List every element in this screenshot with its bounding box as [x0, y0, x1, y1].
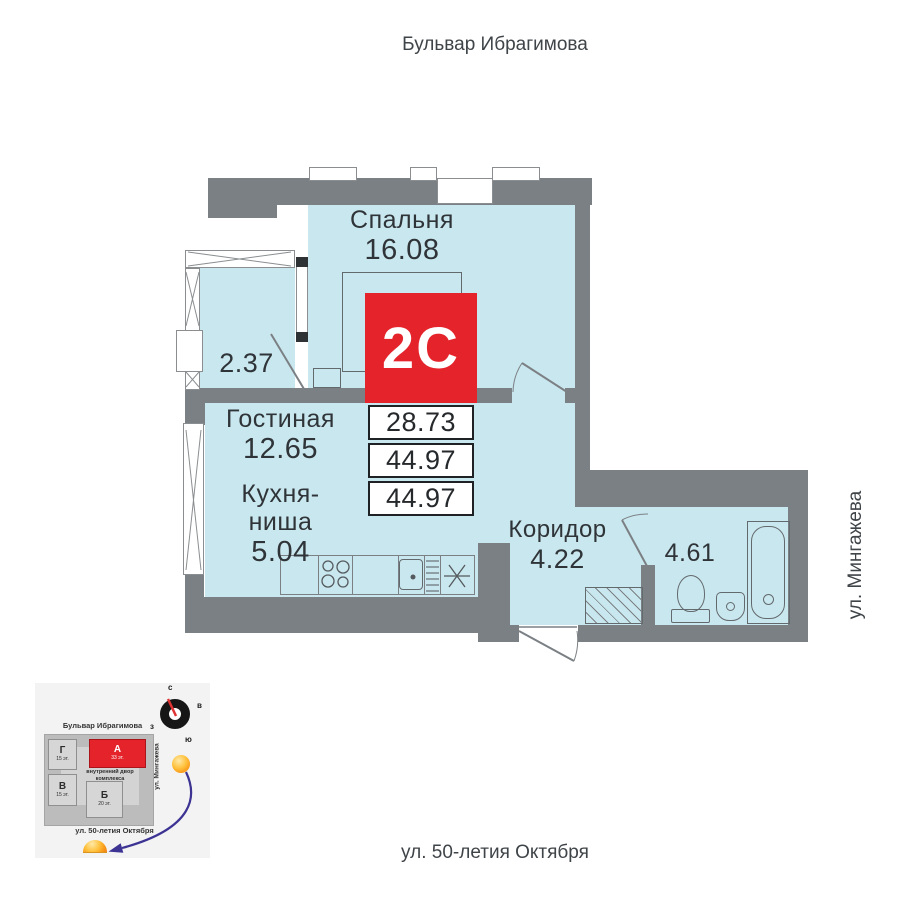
bathtub-inner [751, 526, 785, 619]
building-b-label: Б [101, 791, 108, 801]
kitchen-name: Кухня- ниша [198, 480, 363, 536]
nightstand [313, 368, 341, 388]
corridor-area: 4.22 [485, 544, 630, 574]
building-b-floors: 20 эт. [98, 801, 111, 808]
apartment-type-badge: 2С [365, 293, 477, 403]
living-area: 12.65 [198, 433, 363, 465]
partition-balcony [296, 257, 308, 342]
minimap-street-right: ул. Мингажева [154, 737, 161, 797]
window-top-1 [309, 167, 357, 181]
minimap-courtyard-label: внутренний двор комплекса [75, 769, 145, 783]
compass-icon [160, 699, 190, 729]
compass-south: ю [185, 736, 192, 744]
location-minimap: Бульвар Ибрагимова Г 15 эт. В 15 эт. А 3… [35, 683, 210, 858]
window-balcony-glazing [185, 250, 295, 268]
partition-cap-bottom [296, 332, 308, 342]
window-top-2 [410, 167, 437, 181]
toilet-tank [671, 609, 710, 623]
building-v-floors: 15 эт. [56, 792, 69, 799]
counter-divider [440, 556, 441, 594]
toilet-bowl [677, 575, 705, 612]
corridor-name: Коридор [485, 517, 630, 544]
minimap-building-a-highlighted: А 33 эт. [89, 739, 146, 768]
wall-bedroom-door-stub [565, 388, 590, 403]
compass-east: в [197, 702, 202, 710]
kitchen-sink [399, 559, 423, 590]
wall-wing-bottom [578, 625, 808, 642]
label-bathroom: 4.61 [650, 539, 730, 567]
minimap-building-b: Б 20 эт. [86, 781, 123, 818]
wardrobe-hatch [585, 587, 643, 624]
bedroom-name: Спальня [302, 206, 502, 234]
minimap-building-v: В 15 эт. [48, 774, 77, 806]
wall-bathroom-corridor [641, 565, 655, 625]
counter-divider [424, 556, 425, 594]
building-v-label: В [59, 782, 66, 792]
label-balcony: 2.37 [204, 348, 289, 378]
bathroom-area: 4.61 [650, 539, 730, 567]
building-g-label: Г [60, 746, 66, 756]
window-top-niche [437, 178, 493, 204]
sun-west-icon [83, 840, 107, 853]
compass-north: с [168, 684, 172, 692]
stat-living-area: 28.73 [368, 405, 474, 440]
window-balcony-radiator [176, 330, 203, 372]
bedroom-area: 16.08 [302, 234, 502, 266]
wall-right [575, 178, 590, 474]
stat-total-area: 44.97 [368, 481, 474, 516]
entrance-threshold [519, 626, 577, 628]
floor-plan-page: Бульвар Ибрагимова ул. Мингажева ул. 50-… [0, 0, 900, 900]
building-a-floors: 33 эт. [111, 755, 124, 762]
living-name: Гостиная [198, 405, 363, 433]
label-living: Гостиная 12.65 [198, 405, 363, 465]
balcony-area: 2.37 [204, 348, 289, 378]
stat-area-no-balcony: 44.97 [368, 443, 474, 478]
bathroom-sink-drain [726, 602, 735, 611]
label-kitchen: Кухня- ниша 5.04 [198, 480, 363, 568]
wall-corner-block [208, 178, 277, 218]
wall-left-lower [185, 573, 204, 599]
street-label-top: Бульвар Ибрагимова [402, 34, 588, 56]
kitchen-area: 5.04 [198, 536, 363, 568]
street-label-right: ул. Мингажева [845, 491, 867, 619]
street-label-bottom: ул. 50-летия Октября [401, 842, 589, 864]
wall-wing-right [788, 470, 808, 642]
sun-east-icon [172, 755, 190, 773]
bathtub-drain [763, 594, 774, 605]
compass-west: з [150, 723, 154, 731]
window-top-3 [492, 167, 540, 181]
label-bedroom: Спальня 16.08 [302, 206, 502, 266]
building-g-floors: 15 эт. [56, 756, 69, 763]
minimap-street-bottom: ул. 50-летия Октября [47, 826, 182, 835]
room-corridor-upper [510, 403, 575, 507]
wall-wing-top [575, 470, 808, 507]
wall-kitchen-bottom [185, 597, 510, 633]
door-swing-entrance [519, 631, 578, 661]
label-corridor: Коридор 4.22 [485, 517, 630, 574]
minimap-street-top: Бульвар Ибрагимова [45, 721, 160, 730]
minimap-building-g: Г 15 эт. [48, 739, 77, 770]
building-a-label: А [114, 745, 121, 755]
